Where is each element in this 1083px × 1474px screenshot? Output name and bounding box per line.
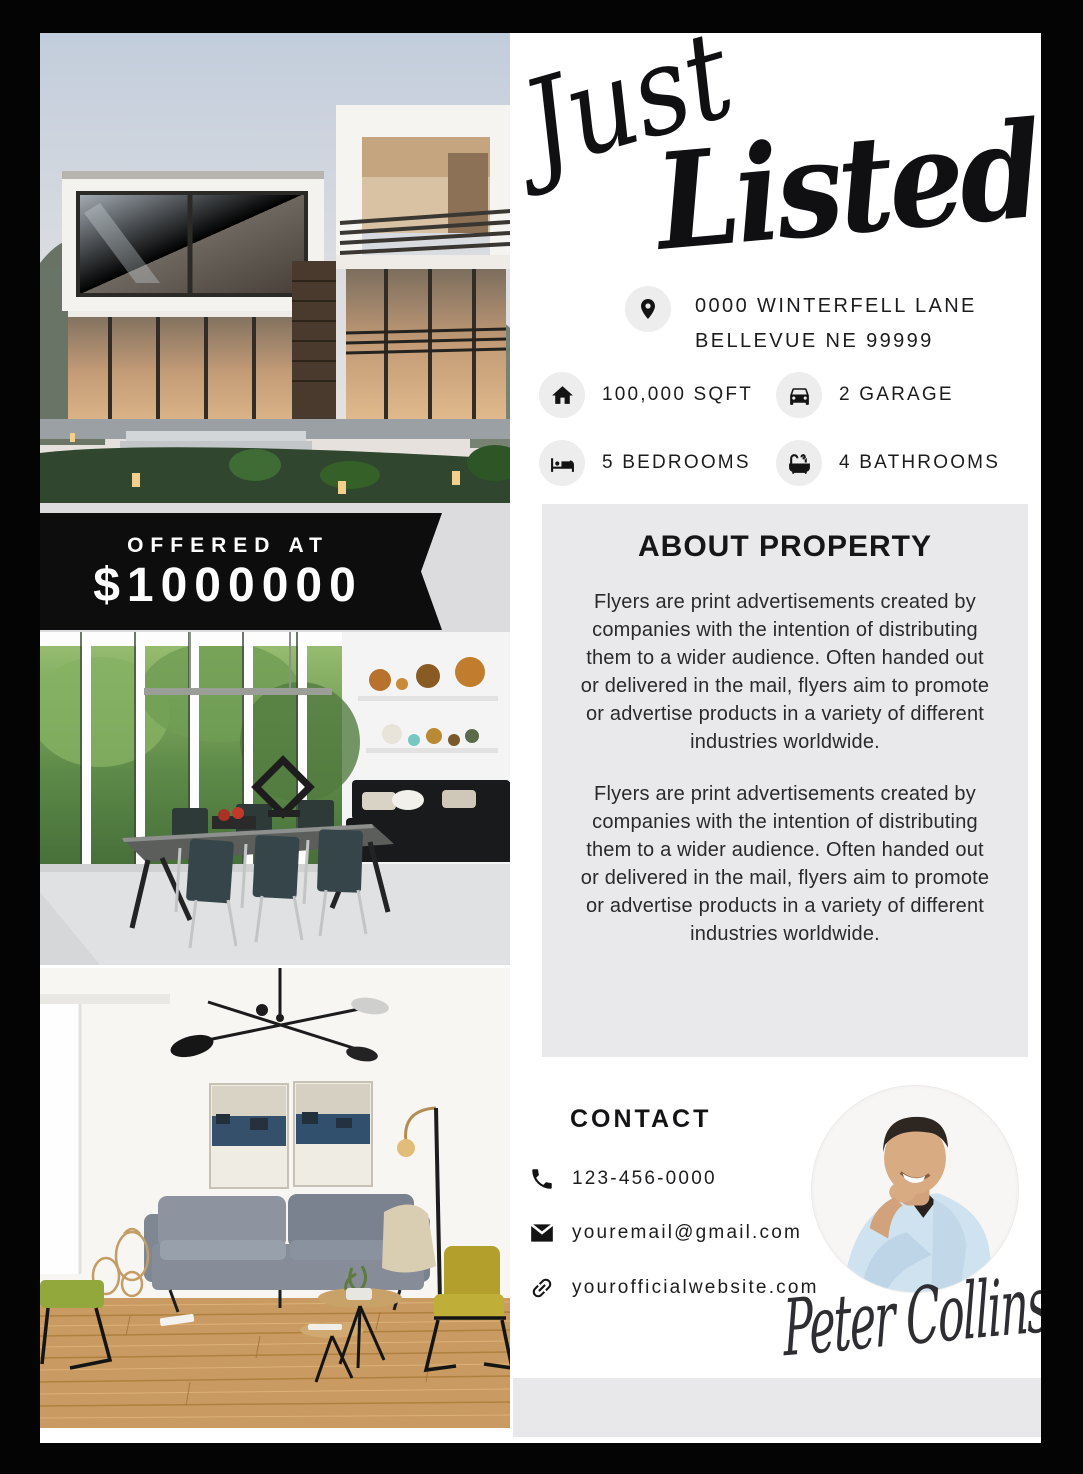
contact-email-row: youremail@gmail.com xyxy=(528,1219,802,1247)
contact-phone-row: 123-456-0000 xyxy=(528,1165,717,1193)
address-block: 0000 WINTERFELL LANE BELLEVUE NE 99999 xyxy=(625,286,977,359)
envelope-icon xyxy=(528,1219,556,1247)
price-band: OFFERED AT $1000000 xyxy=(40,503,510,632)
about-property-section: ABOUT PROPERTY Flyers are print advertis… xyxy=(542,504,1028,1057)
price-amount: $1000000 xyxy=(93,562,363,610)
stat-garage-label: 2 GARAGE xyxy=(839,384,954,406)
stat-garage: 2 GARAGE xyxy=(776,372,954,418)
dining-room-photo xyxy=(40,632,510,965)
about-paragraph-1: Flyers are print advertisements created … xyxy=(579,588,991,756)
email-address: youremail@gmail.com xyxy=(572,1222,802,1244)
contact-website-row: yourofficialwebsite.com xyxy=(528,1274,819,1302)
stat-bedrooms-label: 5 BEDROOMS xyxy=(602,452,751,474)
agent-portrait xyxy=(812,1086,1018,1292)
flyer-paper: OFFERED AT $1000000 xyxy=(40,33,1041,1443)
address-line-2: BELLEVUE NE 99999 xyxy=(695,324,977,359)
house-icon xyxy=(539,372,585,418)
living-room-photo xyxy=(40,968,510,1428)
house-photo xyxy=(40,33,510,503)
bed-icon xyxy=(539,440,585,486)
footer-gray-band xyxy=(513,1378,1041,1437)
stat-bathrooms-label: 4 BATHROOMS xyxy=(839,452,1000,474)
address-line-1: 0000 WINTERFELL LANE xyxy=(695,289,977,324)
location-pin-icon xyxy=(625,286,671,332)
stat-bedrooms: 5 BEDROOMS xyxy=(539,440,751,486)
contact-title: CONTACT xyxy=(570,1105,711,1134)
offered-at-label: OFFERED AT xyxy=(127,534,329,558)
stat-sqft-label: 100,000 SQFT xyxy=(602,384,753,406)
about-paragraph-2: Flyers are print advertisements created … xyxy=(579,780,991,948)
bathtub-icon xyxy=(776,440,822,486)
stat-bathrooms: 4 BATHROOMS xyxy=(776,440,1000,486)
price-ribbon: OFFERED AT $1000000 xyxy=(40,513,442,630)
stat-sqft: 100,000 SQFT xyxy=(539,372,753,418)
link-icon xyxy=(528,1274,556,1302)
flyer-black-frame: OFFERED AT $1000000 xyxy=(0,0,1083,1474)
about-property-title: ABOUT PROPERTY xyxy=(542,530,1028,564)
phone-icon xyxy=(528,1165,556,1193)
address-text: 0000 WINTERFELL LANE BELLEVUE NE 99999 xyxy=(695,286,977,359)
agent-signature: Peter Collins xyxy=(782,1261,1041,1375)
phone-number: 123-456-0000 xyxy=(572,1168,717,1190)
listed-script-heading: Listed xyxy=(650,92,1041,280)
car-icon xyxy=(776,372,822,418)
